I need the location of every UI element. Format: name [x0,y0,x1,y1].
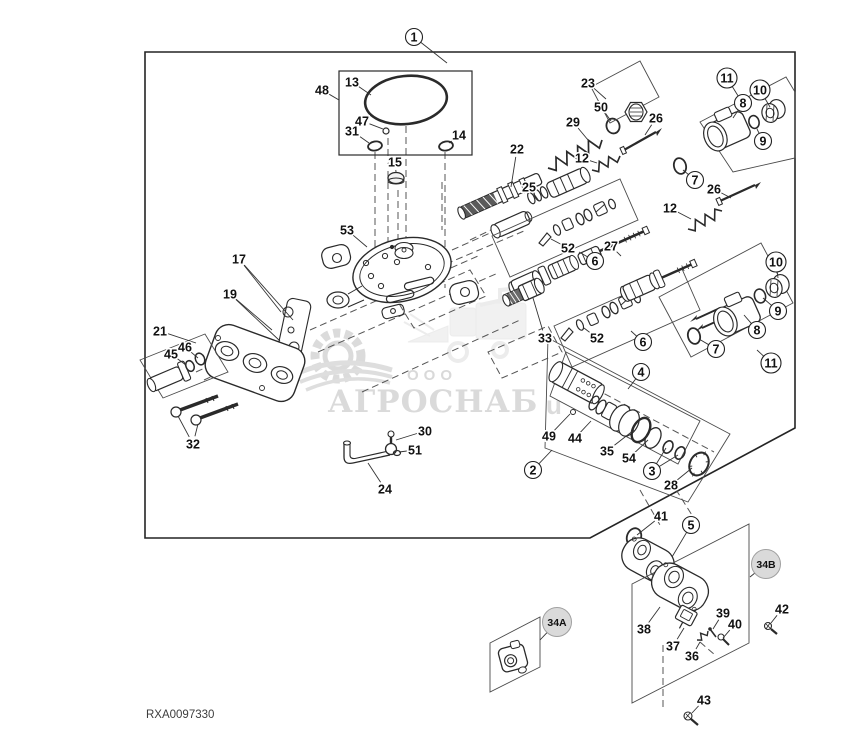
svg-text:52: 52 [561,242,575,256]
guide-sleeve-a [489,209,534,239]
spring-12b [688,209,722,231]
callout-11: 11 [717,68,740,99]
svg-text:44: 44 [568,432,582,446]
svg-text:34A: 34A [547,617,567,629]
connector-34a [496,639,530,678]
detent-pin-26a [620,128,662,154]
svg-text:21: 21 [153,325,167,339]
svg-text:13: 13 [345,76,359,90]
connector-34a-section [490,617,540,692]
callout-34B: 34B [750,550,781,579]
svg-text:5: 5 [688,519,695,533]
svg-text:19: 19 [223,288,237,302]
svg-text:12: 12 [663,202,677,216]
callout-50: 50 [594,101,611,122]
o-ring-9a [747,114,760,129]
svg-text:49: 49 [542,430,556,444]
cone-52a [539,233,551,246]
callout-7: 7 [699,339,725,358]
callout-41: 41 [637,510,668,536]
callout-54: 54 [622,440,648,466]
svg-text:8: 8 [754,324,761,338]
callout-36: 36 [685,642,700,664]
callout-29: 29 [566,116,588,141]
svg-text:52: 52 [590,332,604,346]
body-bottom-bracket [381,303,405,319]
svg-text:4: 4 [638,366,645,380]
svg-text:45: 45 [164,348,178,362]
svg-text:35: 35 [600,445,614,459]
svg-text:3: 3 [649,465,656,479]
callout-28: 28 [664,468,692,493]
cap-screws-32 [171,396,238,425]
part-number: RXA0097330 [146,709,214,721]
svg-text:46: 46 [178,341,192,355]
callout-43: 43 [692,694,711,714]
callout-9: 9 [763,298,787,320]
callout-26: 26 [707,183,731,199]
svg-text:51: 51 [408,444,422,458]
svg-text:11: 11 [720,72,733,86]
callout-24: 24 [368,463,392,497]
svg-text:28: 28 [664,479,678,493]
body-left-ear [320,243,352,270]
elbow-fitting-24 [344,431,401,463]
callout-10: 10 [750,80,770,107]
callout-9: 9 [755,129,772,150]
svg-text:22: 22 [510,143,524,157]
watermark-url-fragment: u [546,390,562,420]
callout-10: 10 [766,252,786,278]
callout-5: 5 [672,517,700,558]
svg-text:48: 48 [315,84,329,98]
svg-text:34B: 34B [756,559,776,571]
svg-text:24: 24 [378,483,392,497]
svg-text:41: 41 [654,510,668,524]
spring-36 [697,631,708,640]
o-ring-3b [673,445,687,461]
callout-42: 42 [771,603,789,624]
svg-text:26: 26 [649,112,663,126]
svg-text:40: 40 [728,618,742,632]
callout-26: 26 [645,112,663,136]
screw-40 [718,634,729,645]
plug-45-46 [144,361,191,396]
svg-text:38: 38 [637,623,651,637]
callout-53: 53 [340,224,367,248]
svg-text:33: 33 [538,332,552,346]
exploded-parts-diagram: ООО АГРОСНАБ u [0,0,841,731]
svg-text:8: 8 [740,97,747,111]
callout-34A: 34A [540,608,572,641]
hex-plug-23 [625,103,647,122]
spool-sleeve-a [545,166,592,199]
callout-33: 33 [533,298,552,346]
fitting-body [386,444,397,455]
svg-text:31: 31 [345,125,359,139]
svg-text:9: 9 [760,135,767,149]
svg-text:7: 7 [692,174,699,188]
callout-7: 7 [683,170,704,189]
spring-12a [592,156,620,172]
callout-23: 23 [581,77,606,100]
callout-52: 52 [584,328,604,346]
svg-text:29: 29 [566,116,580,130]
o-ring-31 [367,140,382,151]
callout-47: 47 [355,115,383,130]
callout-3: 3 [644,448,679,480]
callout-15: 15 [388,156,402,173]
cone-52b [561,328,573,341]
ball-49 [571,410,576,415]
body-right-ear [448,279,480,306]
svg-text:7: 7 [713,343,720,357]
svg-text:53: 53 [340,224,354,238]
o-ring-13 [363,72,450,128]
plug-15 [388,173,404,185]
callout-14: 14 [449,129,466,144]
svg-text:14: 14 [452,129,466,143]
callout-2: 2 [525,450,553,479]
callout-38: 38 [637,607,660,637]
svg-text:17: 17 [232,253,246,267]
svg-text:10: 10 [769,256,783,270]
valve-spool-c [618,254,699,303]
callout-11: 11 [757,350,781,373]
svg-text:15: 15 [388,156,402,170]
svg-text:54: 54 [622,452,636,466]
callout-13: 13 [345,76,371,96]
svg-text:12: 12 [575,152,589,166]
svg-text:42: 42 [775,603,789,617]
svg-text:27: 27 [604,240,618,254]
nut-10a [760,98,787,124]
callout-51: 51 [399,444,422,458]
callout-48: 48 [315,84,339,101]
callout-12: 12 [575,152,597,166]
watermark-company: АГРОСНАБ [328,384,539,420]
callout-12: 12 [663,202,691,220]
svg-text:32: 32 [186,438,200,452]
screw-43 [684,712,698,725]
callout-30: 30 [396,425,432,441]
svg-text:30: 30 [418,425,432,439]
svg-text:1: 1 [411,31,418,45]
screw-42 [765,623,778,635]
svg-text:23: 23 [581,77,595,91]
callout-17: 17 [232,253,293,321]
callout-52: 52 [551,239,575,256]
callout-40: 40 [723,618,742,639]
parts-diagram-page: ООО АГРОСНАБ u [0,0,841,731]
callout-1: 1 [406,29,448,64]
ball-47 [383,128,389,134]
svg-text:6: 6 [640,336,647,350]
svg-text:50: 50 [594,101,608,115]
svg-text:9: 9 [775,305,782,319]
svg-text:26: 26 [707,183,721,197]
svg-text:2: 2 [530,464,537,478]
pin-39 [708,627,716,637]
spool-row-a [456,61,662,239]
o-ring-50 [605,117,621,135]
svg-text:36: 36 [685,650,699,664]
svg-text:25: 25 [522,181,536,195]
svg-text:11: 11 [764,357,777,371]
callout-37: 37 [666,628,684,654]
callout-44: 44 [568,421,591,446]
svg-text:37: 37 [666,640,680,654]
callout-4: 4 [628,364,650,390]
svg-text:43: 43 [697,694,711,708]
o-ring-7b [686,327,702,346]
o-ring-28 [684,447,713,480]
watermark-prefix: ООО [407,367,457,384]
o-ring-9b [753,288,767,304]
svg-text:6: 6 [592,255,599,269]
svg-text:10: 10 [753,84,767,98]
plug-kit-box-11a [672,77,795,175]
ring-54 [642,425,665,451]
body-top-boss [395,243,413,259]
callout-6: 6 [631,331,652,351]
